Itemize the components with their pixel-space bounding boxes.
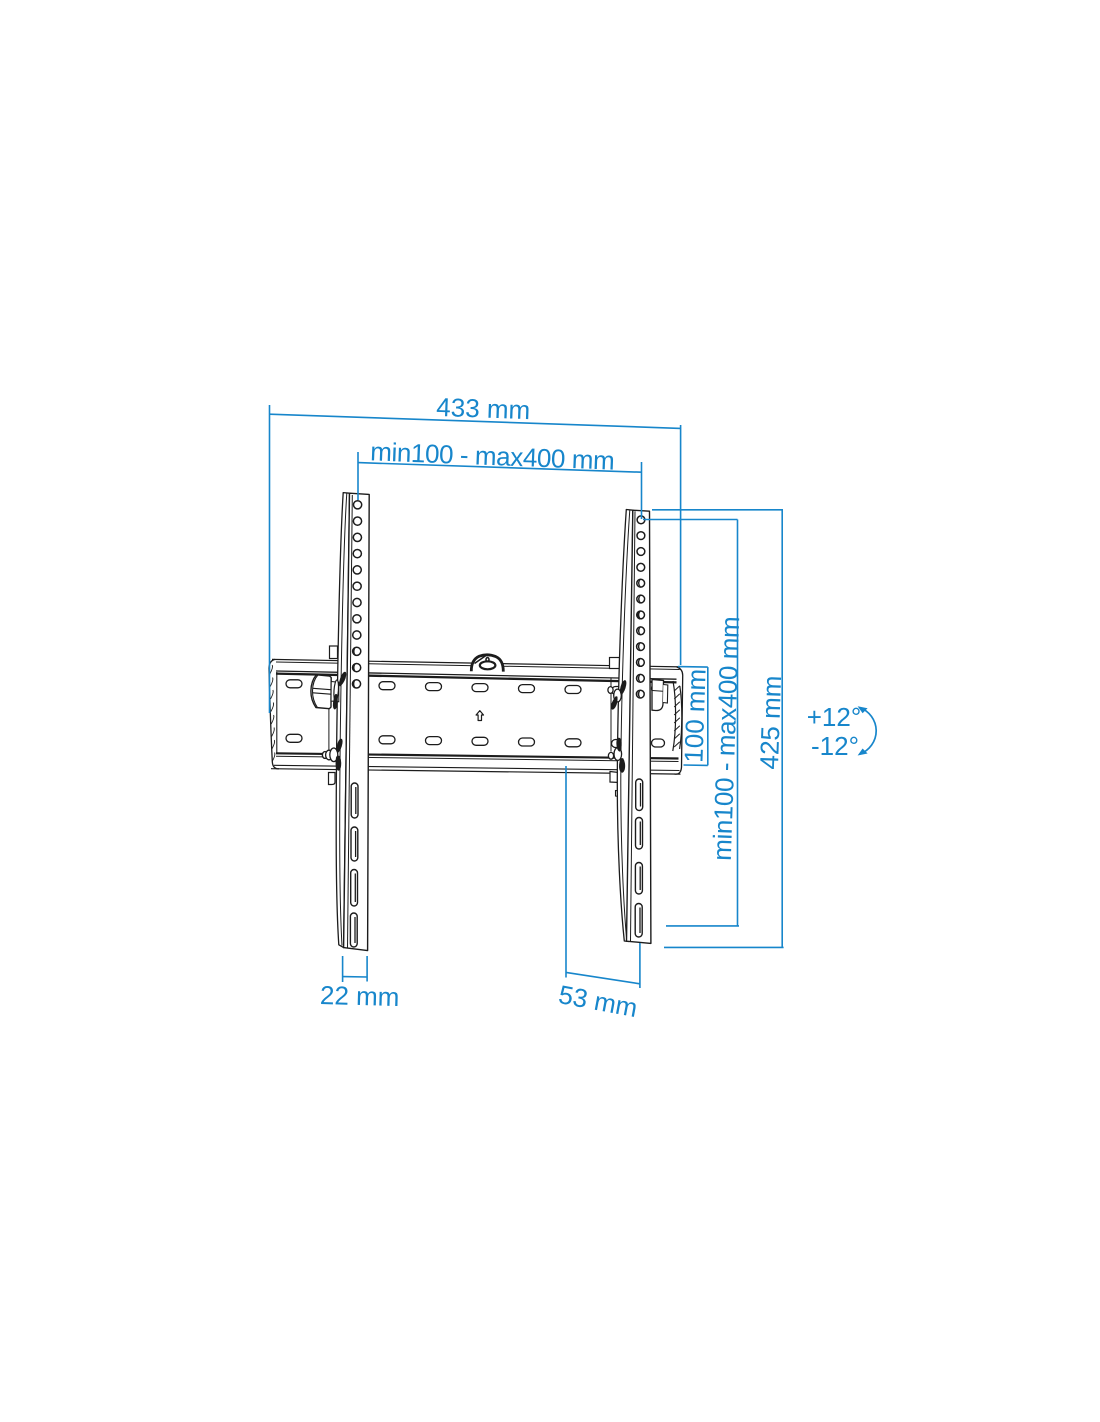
svg-text:-12°: -12° (811, 731, 859, 761)
svg-text:100 mm: 100 mm (678, 668, 711, 763)
svg-text:22 mm: 22 mm (320, 980, 400, 1012)
svg-text:+12°: +12° (807, 702, 862, 732)
svg-text:433 mm: 433 mm (436, 392, 531, 425)
svg-text:425 mm: 425 mm (754, 675, 787, 770)
